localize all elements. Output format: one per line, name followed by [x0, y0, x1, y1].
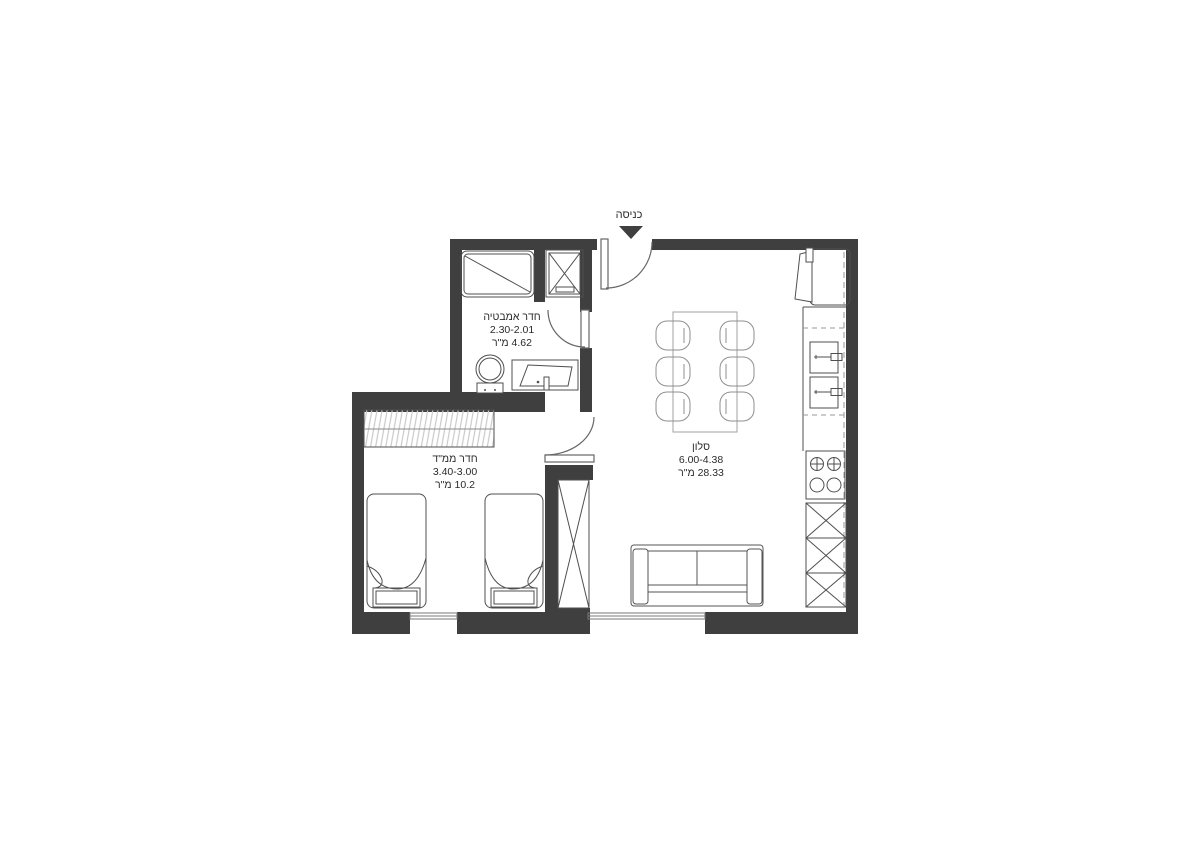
- floor-plan: כניסה חדר אמבטיה 2.30-2.01 4.62 מ"ר חדר …: [0, 0, 1191, 842]
- room-label-bathroom: חדר אמבטיה 2.30-2.01 4.62 מ"ר: [452, 311, 572, 350]
- wall-bottom-right: [705, 612, 858, 634]
- wall-bathroom-right-upper: [580, 248, 592, 312]
- fridge-icon: [795, 248, 850, 305]
- kitchen-sink-icon: [810, 377, 842, 408]
- wall-right: [846, 239, 858, 634]
- room-area: 28.33 מ"ר: [641, 467, 761, 480]
- shaft-cabinet-icon: [558, 480, 589, 608]
- room-name: חדר אמבטיה: [452, 311, 572, 324]
- floor-plan-drawing: [0, 0, 1191, 842]
- entry-door: [601, 239, 652, 289]
- room-dimensions: 2.30-2.01: [452, 324, 572, 337]
- doors: [545, 239, 652, 462]
- closet-icon: [364, 410, 494, 447]
- wall-corridor-cap: [545, 465, 593, 480]
- room-label-safe-room: חדר ממ"ד 3.40-3.00 10.2 מ"ר: [395, 453, 515, 492]
- wall-top-right: [652, 239, 858, 250]
- wall-bathroom-right-lower: [580, 348, 592, 412]
- room-dimensions: 6.00-4.38: [641, 454, 761, 467]
- room-name: סלון: [641, 441, 761, 454]
- dining-chairs: [656, 321, 754, 421]
- wall-corridor-foot: [545, 608, 590, 634]
- bathroom-sink-icon: [512, 360, 578, 390]
- stove-icon: [806, 451, 845, 499]
- room-area: 10.2 מ"ר: [395, 479, 515, 492]
- wall-bathroom-top: [450, 239, 597, 250]
- sofa-icon: [631, 545, 763, 606]
- room-area: 4.62 מ"ר: [452, 337, 572, 350]
- dining-table-icon: [673, 312, 737, 432]
- kitchen: [795, 248, 850, 607]
- bed-icon: [367, 494, 426, 608]
- wall-bath-partition: [534, 239, 545, 302]
- room-label-living-room: סלון 6.00-4.38 28.33 מ"ר: [641, 441, 761, 480]
- bed-icon: [485, 494, 543, 608]
- wall-bedroom-top: [352, 392, 545, 412]
- entrance-arrow-icon: [619, 226, 643, 239]
- wall-corridor: [545, 465, 558, 612]
- bedroom-door: [545, 417, 594, 462]
- entrance-label: כניסה: [579, 209, 679, 221]
- entrance-text: כניסה: [616, 209, 643, 221]
- toilet-icon: [476, 355, 504, 393]
- wall-left: [352, 392, 364, 634]
- room-name: חדר ממ"ד: [395, 453, 515, 466]
- kitchen-cabinets: [806, 503, 846, 607]
- bathtub-icon: [461, 251, 534, 297]
- kitchen-sink-icon: [810, 342, 842, 373]
- washer-column-icon: [546, 250, 583, 297]
- room-dimensions: 3.40-3.00: [395, 466, 515, 479]
